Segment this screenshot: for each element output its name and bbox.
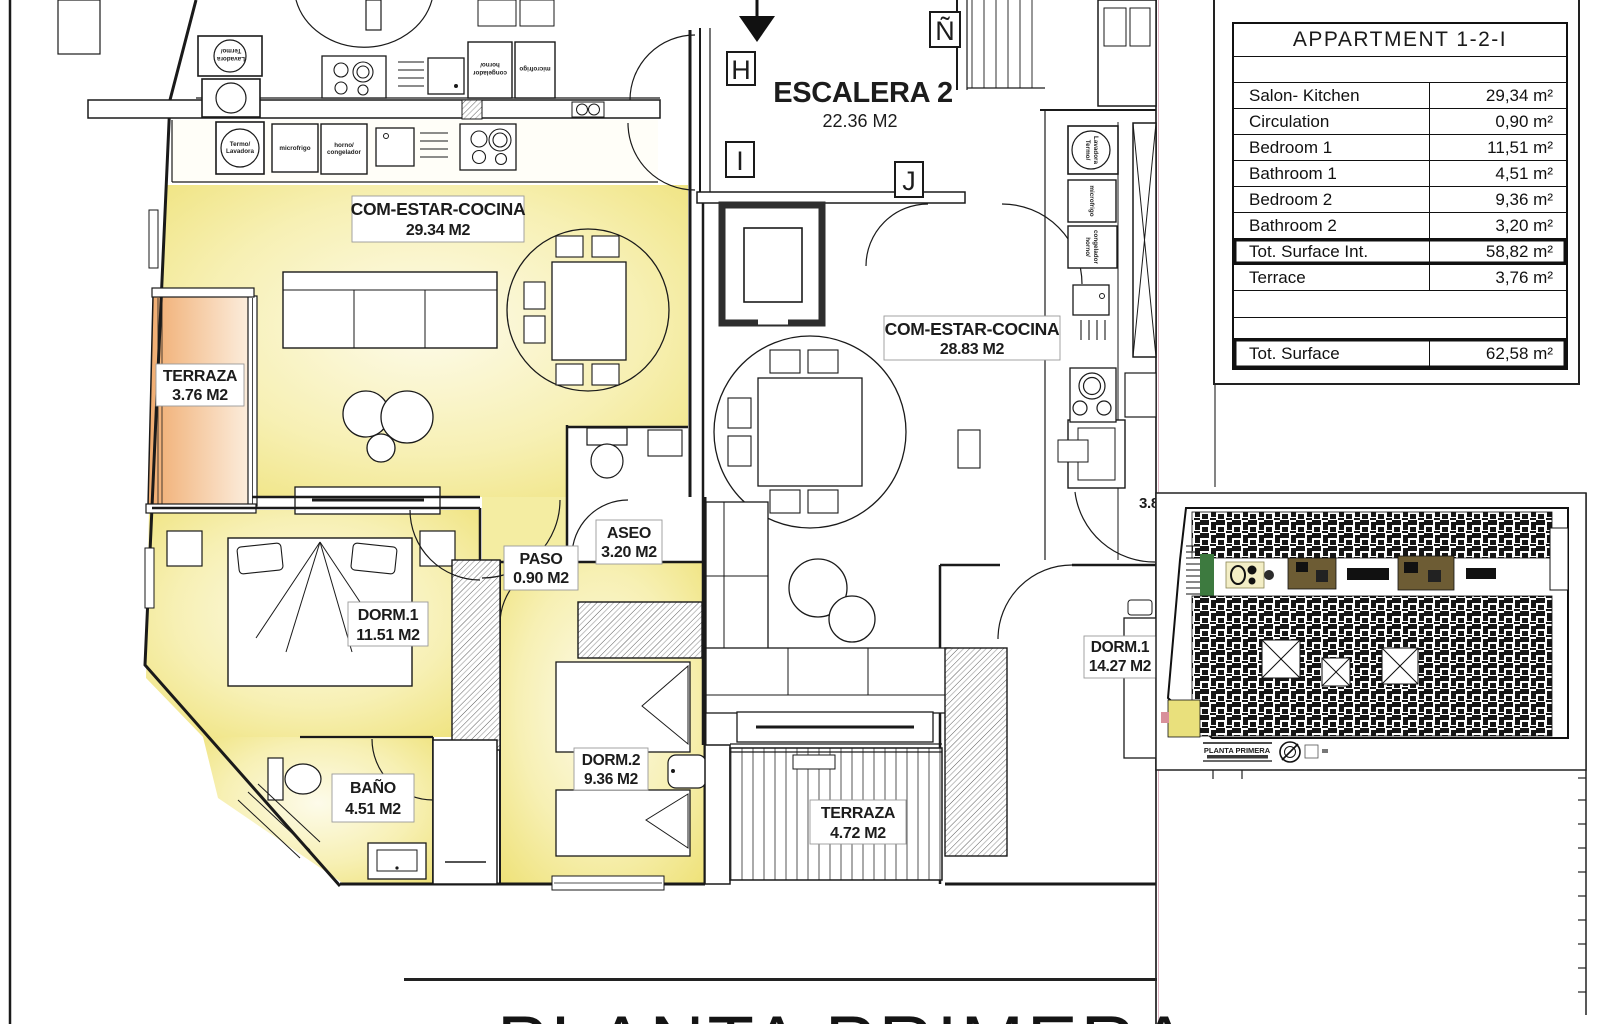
overview-map: PLANTA PRIMERA (1156, 493, 1586, 770)
appliance-label: horno/ (334, 142, 354, 149)
appliance-label: Termo/ (230, 141, 251, 148)
apartment-area-table: APPARTMENT 1-2-I Salon- Kitchen 29,34 m²… (1232, 22, 1568, 370)
row-label: Bathroom 2 (1234, 216, 1429, 236)
escalera-name: ESCALERA 2 (773, 77, 953, 109)
room-name: BAÑO (350, 777, 396, 797)
table-blank-row (1234, 318, 1566, 339)
room-name: TERRAZA (163, 368, 238, 385)
table-blank-row (1234, 291, 1566, 318)
stairs-direction-arrow (739, 16, 775, 42)
marker-j: J (902, 166, 916, 196)
table-row: Bedroom 1 11,51 m² (1234, 135, 1566, 161)
table-row: Bedroom 2 9,36 m² (1234, 187, 1566, 213)
aseo-fixtures (587, 428, 682, 478)
room-area: 14.27 M2 (1089, 658, 1151, 675)
row-value: 29,34 m² (1429, 83, 1566, 108)
row-label: Terrace (1234, 268, 1429, 288)
row-value: 11,51 m² (1429, 135, 1566, 160)
row-value: 4,51 m² (1429, 161, 1566, 186)
marker-h: H (731, 55, 751, 85)
table-row: Terrace 3,76 m² (1234, 265, 1566, 291)
appliance-label: horno/ (480, 61, 500, 68)
room-area: 3.20 M2 (601, 544, 657, 561)
room-area: 0.90 M2 (513, 570, 569, 587)
room-name: PASO (520, 551, 563, 568)
table-row: Bathroom 1 4,51 m² (1234, 161, 1566, 187)
appliance-label: Termo/ (1084, 140, 1091, 161)
row-value: 62,58 m² (1429, 339, 1566, 368)
row-label: Bedroom 2 (1234, 190, 1429, 210)
room-name: TERRAZA (821, 805, 896, 822)
row-value: 9,36 m² (1429, 187, 1566, 212)
room-area: 4.72 M2 (830, 825, 886, 842)
room-name: DORM.1 (1091, 639, 1150, 656)
row-label: Bedroom 1 (1234, 138, 1429, 158)
table-row: Circulation 0,90 m² (1234, 109, 1566, 135)
appliance-label: congelador (1092, 230, 1099, 264)
room-area: 4.51 M2 (345, 801, 401, 818)
room-area: 28.83 M2 (940, 341, 1005, 358)
room-name: COM-ESTAR-COCINA (351, 199, 526, 219)
room-area: 3.76 M2 (172, 387, 228, 404)
row-value: 0,90 m² (1429, 109, 1566, 134)
row-value: 58,82 m² (1429, 239, 1566, 264)
room-area: 29.34 M2 (406, 222, 471, 239)
table-blank-row (1234, 57, 1566, 83)
row-value: 3,76 m² (1429, 265, 1566, 290)
right-apartment: Termo/ Lavadora microfrigo horno/ congel… (703, 0, 1156, 884)
marker-i: I (736, 146, 744, 176)
table-title: APPARTMENT 1-2-I (1234, 24, 1566, 57)
row-value: 3,20 m² (1429, 213, 1566, 238)
table-row: Bathroom 2 3,20 m² (1234, 213, 1566, 239)
room-area: 11.51 M2 (356, 627, 420, 644)
escalera-area: 22.36 M2 (822, 111, 897, 131)
row-label: Circulation (1234, 112, 1429, 132)
room-name: ASEO (607, 525, 651, 542)
appliance-label: Termo/ (220, 47, 241, 54)
room-name: DORM.1 (358, 607, 419, 624)
row-label: Tot. Surface (1234, 344, 1429, 364)
sheet-title: PLANTA PRIMERA (497, 1000, 1192, 1024)
title-rule (404, 978, 1157, 981)
row-label: Bathroom 1 (1234, 164, 1429, 184)
row-label: Salon- Kitchen (1234, 86, 1429, 106)
room-name: DORM.2 (582, 752, 640, 769)
room-area: 9.36 M2 (584, 771, 638, 788)
appliance-label: horno/ (1084, 237, 1091, 257)
kitchen-right (1058, 126, 1118, 462)
appliance-label: congelador (327, 149, 361, 156)
appliance-label: microfrigo (1088, 185, 1095, 216)
appliance-label: Lavadora (217, 55, 245, 62)
row-label: Tot. Surface Int. (1234, 242, 1429, 262)
appliance-label: microfrigo (279, 145, 310, 152)
table-row-total-surface: Tot. Surface 62,58 m² (1234, 339, 1566, 368)
appliance-label: congelador (472, 69, 506, 76)
staircase: Ñ H I J ESCALERA 2 22.36 M2 (697, 0, 1082, 323)
appliance-label: Lavadora (226, 148, 254, 155)
elevator (722, 205, 822, 323)
floorplan-page: Termo/ Lavadora horno/ congelador microf… (0, 0, 1600, 1024)
room-name: COM-ESTAR-COCINA (885, 319, 1060, 339)
marker-n: Ñ (935, 15, 955, 46)
appliance-label: microfrigo (519, 65, 550, 72)
table-row-total-interior: Tot. Surface Int. 58,82 m² (1234, 239, 1566, 265)
overview-caption-text: PLANTA PRIMERA (1204, 746, 1271, 755)
appliance-label: Lavadora (1092, 136, 1099, 164)
table-row: Salon- Kitchen 29,34 m² (1234, 83, 1566, 109)
living-right-furniture (706, 336, 980, 742)
